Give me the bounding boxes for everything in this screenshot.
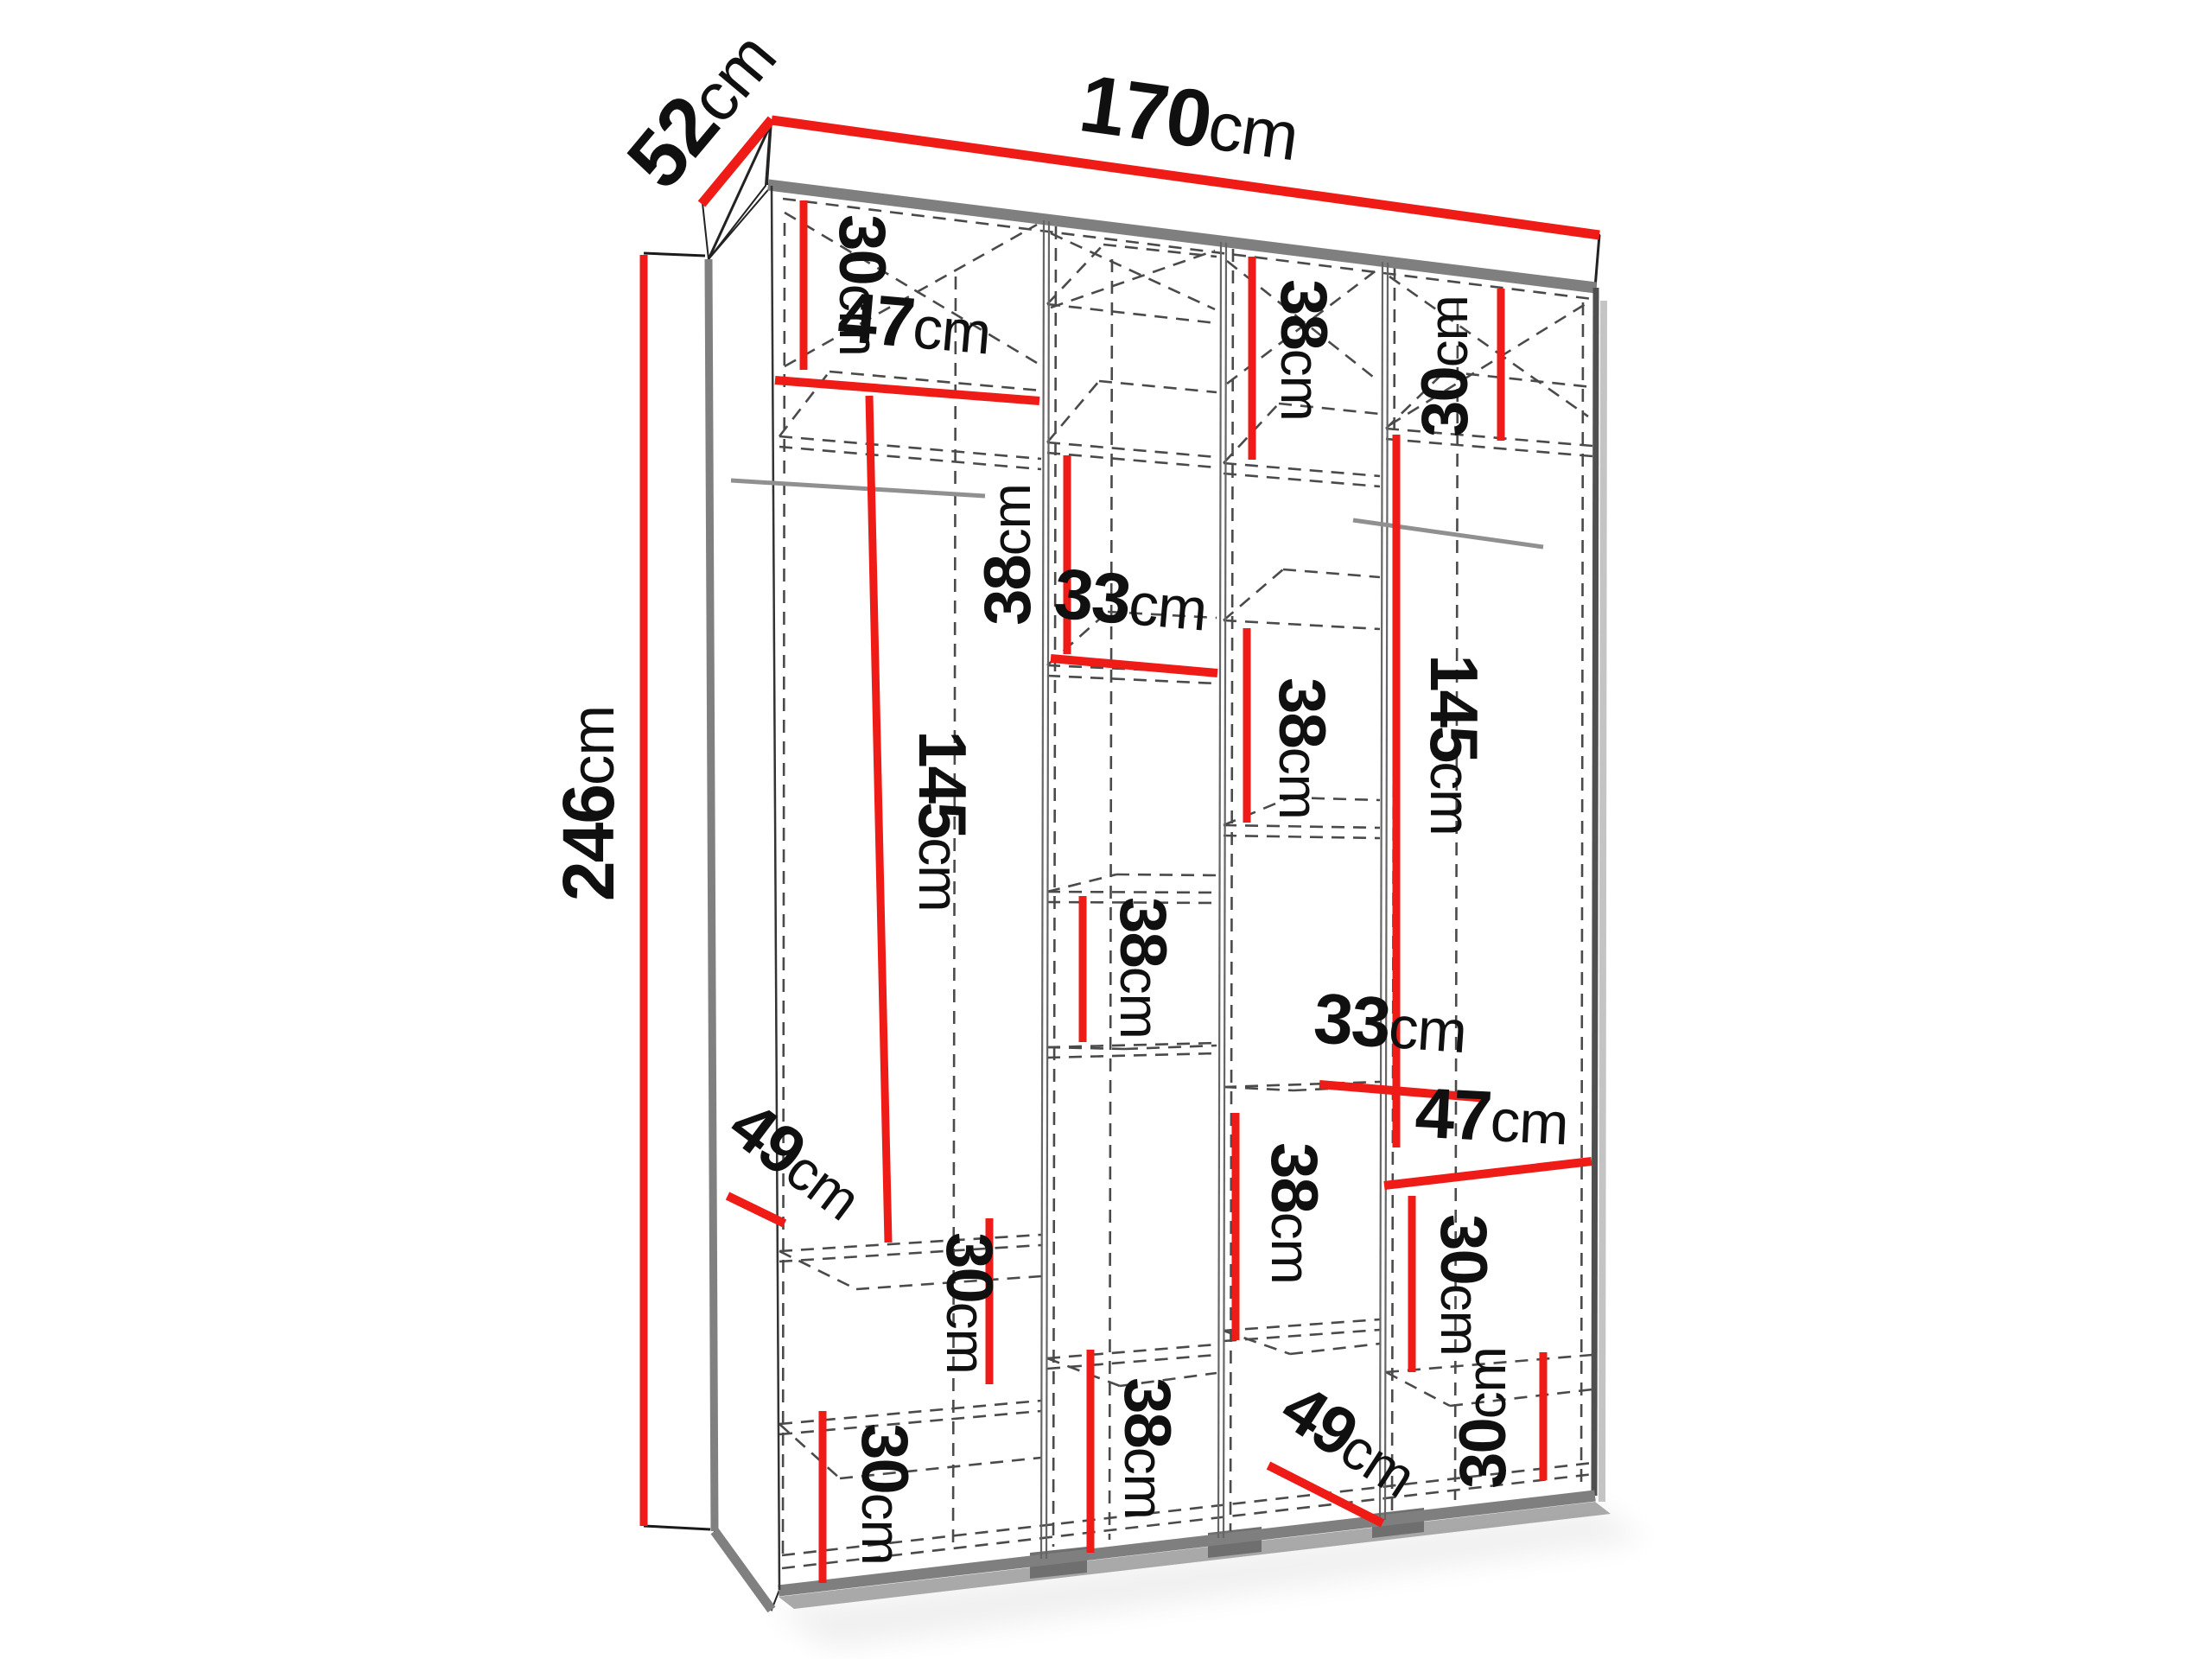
dimension-label: 38cm xyxy=(1267,279,1340,421)
dimension-label: 30cm xyxy=(1408,296,1482,437)
dimension-label: 38cm xyxy=(1265,677,1338,819)
dimension-label: 170cm xyxy=(1074,57,1304,177)
dimension-label: 30cm xyxy=(848,1423,921,1565)
dimension-label: 30cm xyxy=(1446,1347,1520,1489)
dimension-label: 38cm xyxy=(1106,897,1179,1039)
dimension-label: 38cm xyxy=(971,484,1045,626)
dimension-label: 246cm xyxy=(548,706,629,901)
panel-edge xyxy=(1602,301,1604,1502)
dimension-label: 38cm xyxy=(1257,1142,1331,1284)
side-face xyxy=(709,186,779,1610)
panel-edge xyxy=(1594,288,1596,1496)
panel-edge xyxy=(644,253,705,256)
dimension-label: 38cm xyxy=(1110,1377,1184,1519)
dimension-label: 145cm xyxy=(905,730,981,911)
dimension-label: 30cm xyxy=(1427,1214,1500,1356)
panel-edge xyxy=(644,1526,710,1529)
wardrobe-dimension-diagram: 52cm170cm246cm30cm47cm145cm49cm30cm30cm3… xyxy=(0,0,2212,1659)
diagram-canvas: 52cm170cm246cm30cm47cm145cm49cm30cm30cm3… xyxy=(0,0,2212,1659)
dimension-label: 30cm xyxy=(932,1232,1006,1374)
dimension-label: 145cm xyxy=(1416,654,1492,835)
